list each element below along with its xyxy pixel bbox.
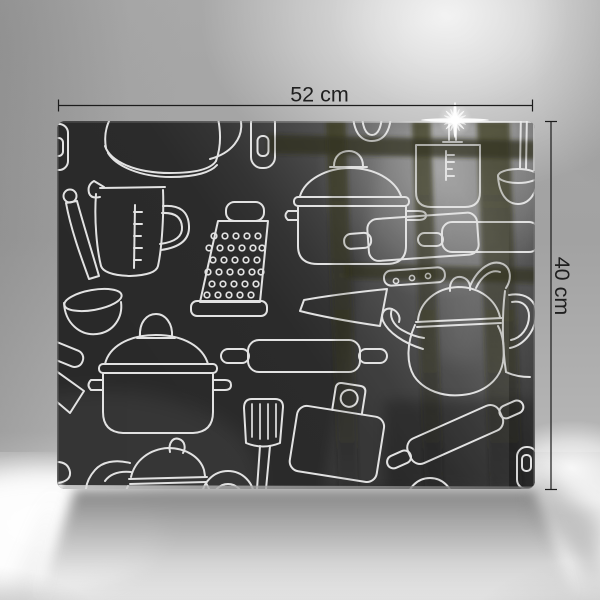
svg-text:40 cm: 40 cm [550, 257, 574, 316]
svg-text:52 cm: 52 cm [290, 83, 349, 107]
